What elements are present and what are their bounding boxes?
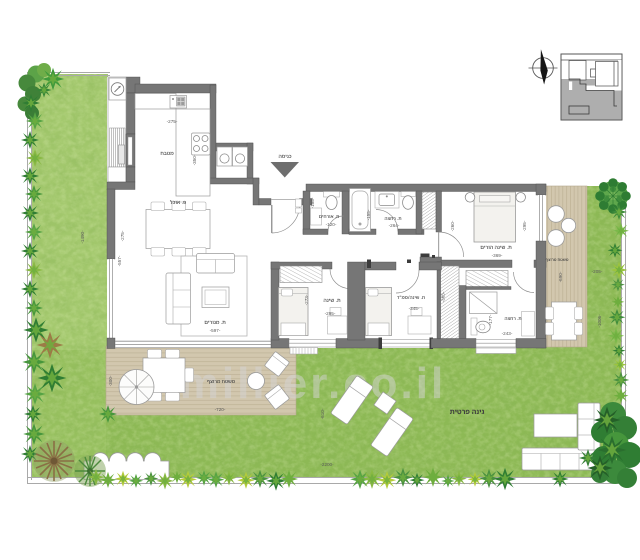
svg-text:-260-: -260- [450,220,455,231]
svg-text:-177-: -177- [488,314,493,325]
svg-text:-557-: -557- [117,255,122,266]
svg-text:-295-: -295- [522,220,527,231]
svg-text:-345-: -345- [409,306,420,311]
svg-text:-300-: -300- [108,375,113,386]
svg-text:-295-: -295- [325,311,336,316]
svg-text:-1006-: -1006- [597,314,602,328]
svg-text:-350-: -350- [192,154,197,165]
svg-text:-369-: -369- [492,253,503,258]
svg-text:-690-: -690- [558,271,563,282]
svg-text:-275-: -275- [120,230,125,241]
svg-text:-275-: -275- [167,119,178,124]
svg-text:-155-: -155- [310,197,315,208]
svg-text:-1490-: -1490- [80,230,85,244]
svg-text:-155-: -155- [366,209,371,220]
svg-text:-243-: -243- [502,331,513,336]
svg-text:millier.co.il: millier.co.il [180,359,446,408]
svg-text:-365-: -365- [441,291,446,302]
svg-text:-120-: -120- [326,222,337,227]
svg-text:-273-: -273- [304,294,309,305]
svg-text:-597-: -597- [210,328,221,333]
svg-text:-264-: -264- [389,223,400,228]
svg-text:-2200-: -2200- [320,462,334,467]
svg-text:-720-: -720- [215,407,226,412]
svg-text:-205-: -205- [592,269,603,274]
svg-text:-610-: -610- [320,408,325,419]
